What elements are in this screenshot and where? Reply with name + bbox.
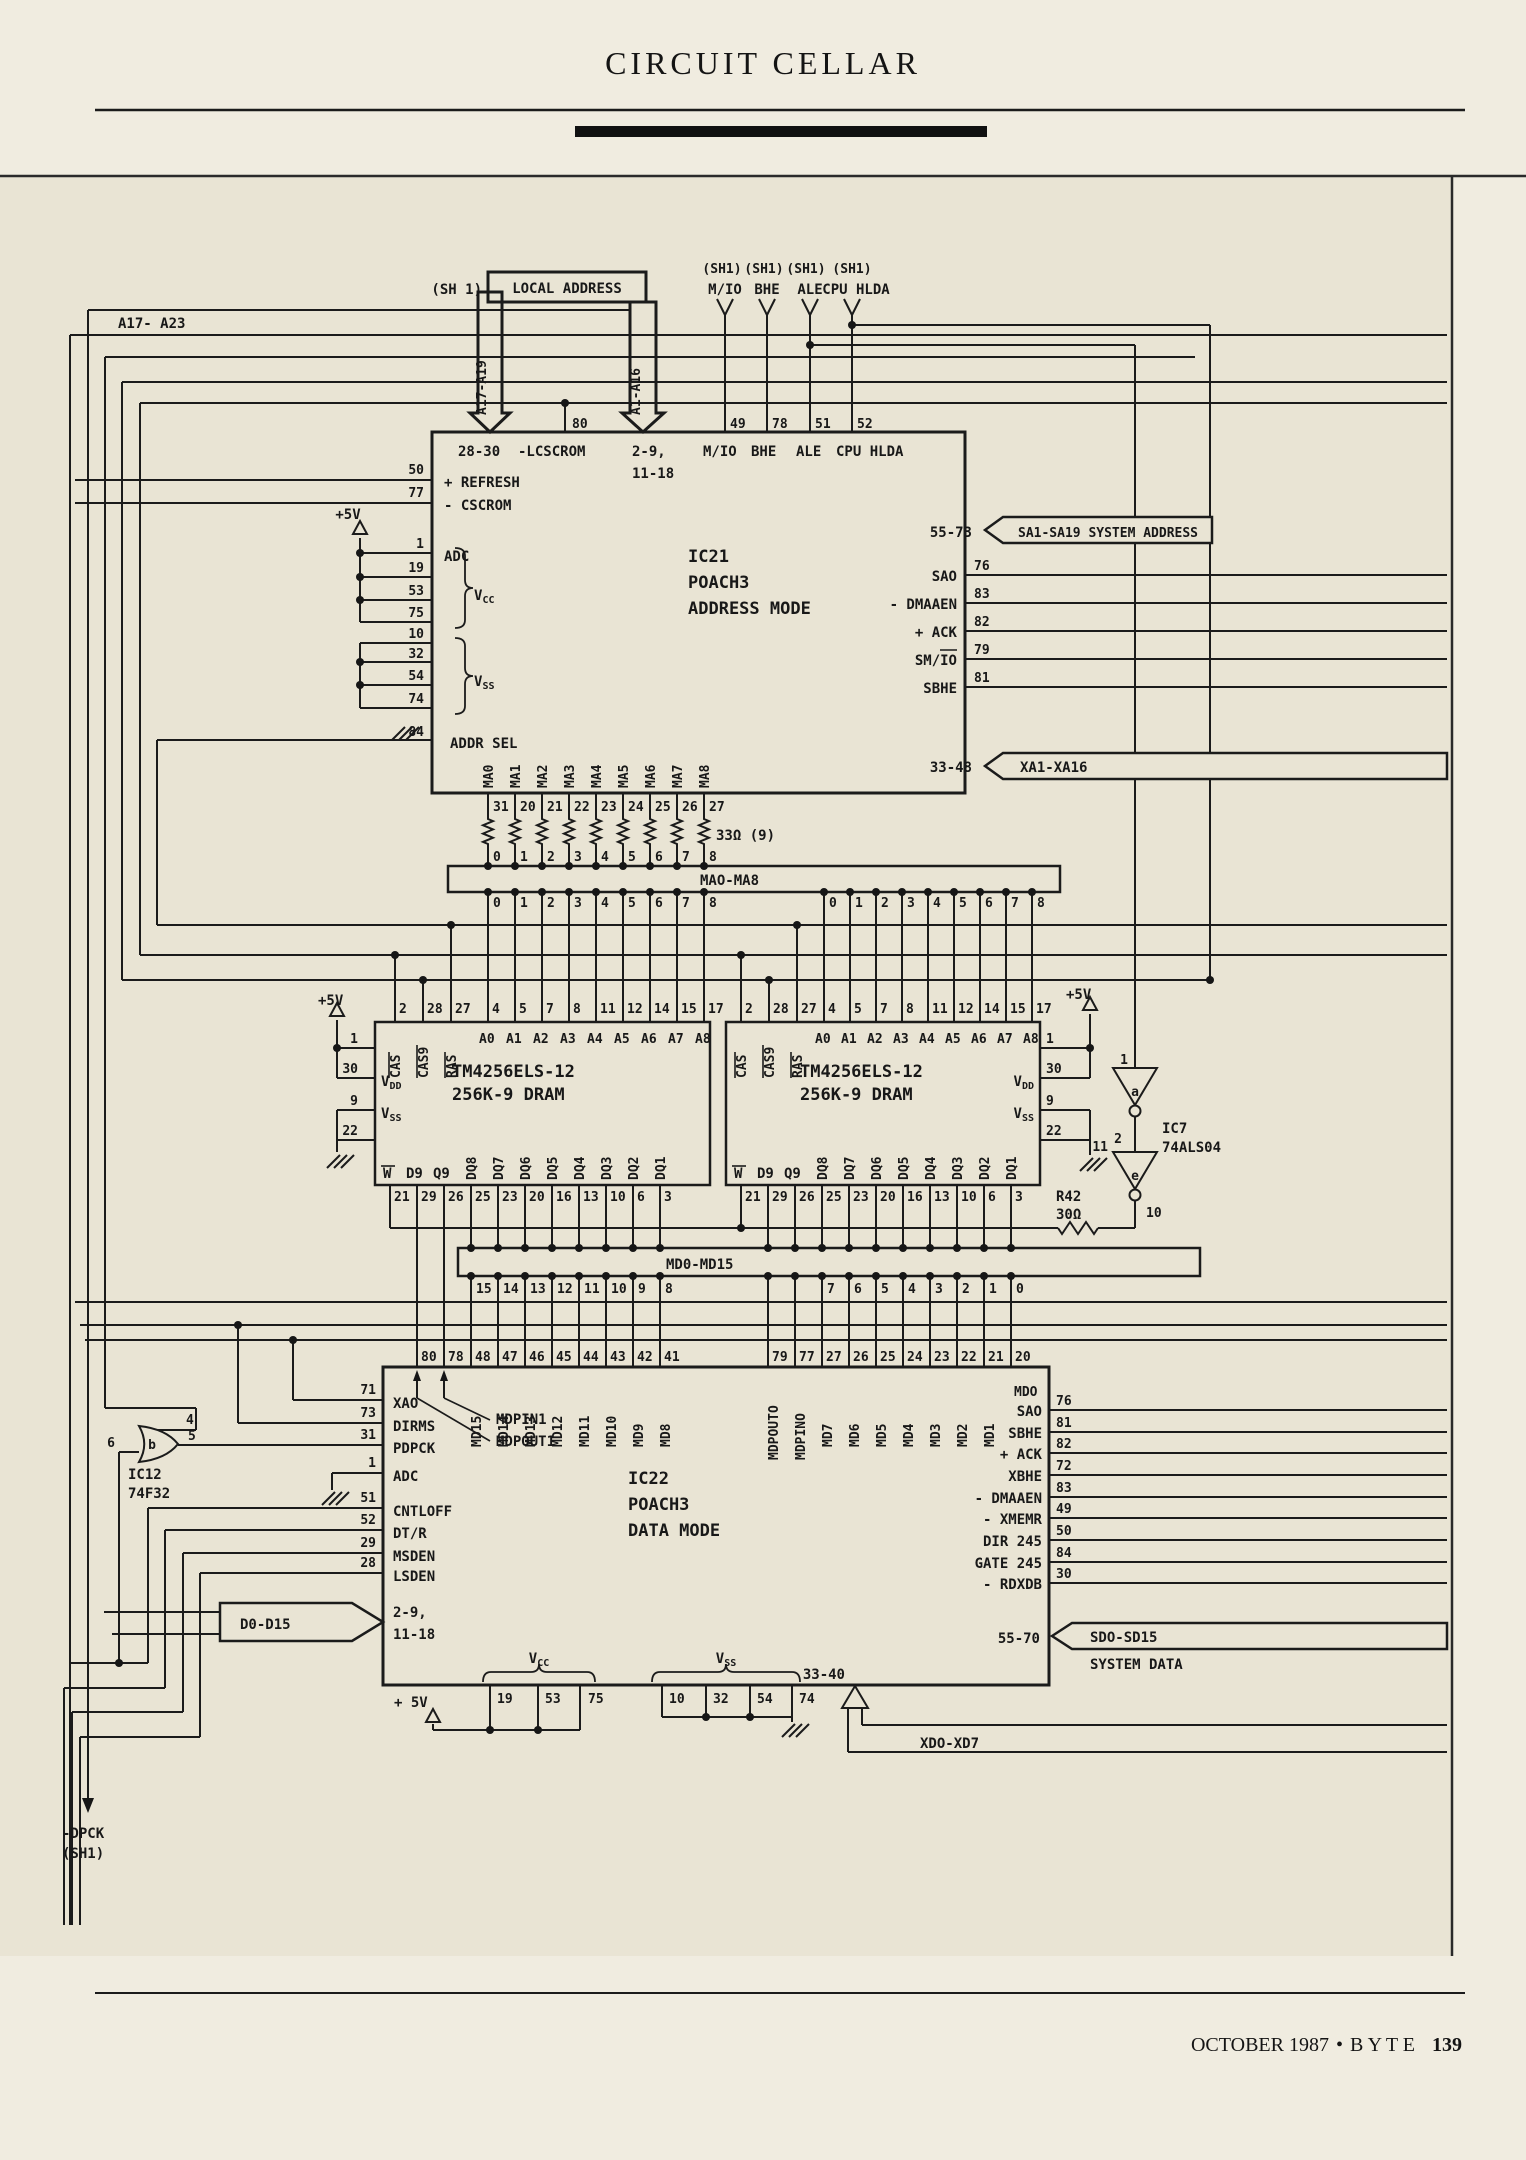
junction-dot	[521, 1272, 529, 1280]
label-ic21-top_labels-2: ALE	[796, 444, 821, 460]
label-md_bus-right_bits-7: 0	[1016, 1282, 1024, 1297]
label-ic22-top_pin_nums-5: 45	[556, 1350, 572, 1365]
junction-dot	[764, 1272, 772, 1280]
junction-dot	[980, 1244, 988, 1252]
label-ic12-part: 74F32	[128, 1486, 170, 1502]
label-ic22-xd_range: 33-40	[803, 1667, 845, 1683]
label-ic21-bottom-pin_nums-6: 25	[655, 800, 671, 815]
label-md_bus-right_bits-6: 1	[989, 1282, 997, 1297]
junction-dot	[511, 888, 519, 896]
label-ic21-top_pin_nums-4: 52	[857, 417, 873, 432]
label-ic22-md_high-4: MD11	[578, 1416, 593, 1447]
label-dram-top_pin_nums-0: 2	[745, 1002, 753, 1017]
label-md_bus-left_bits-1: 14	[503, 1282, 519, 1297]
label-ic21-bottom-bit_nums-0: 0	[493, 896, 501, 911]
label-ic21-bottom-bit_nums-8: 8	[709, 896, 717, 911]
label-dram-bottom_labels-6: DQ5	[897, 1157, 912, 1180]
junction-dot	[619, 888, 627, 896]
label-ic22-top_pin_nums-15: 24	[907, 1350, 923, 1365]
label-dram-top_labels-7: A4	[587, 1032, 603, 1047]
label-dram-top_labels-1: CAS9	[417, 1047, 432, 1078]
label-ic21-left_pins-2-label: ADC	[444, 549, 469, 565]
label-ic22-left_pins-0-label: XAO	[393, 1396, 418, 1412]
junction-dot	[656, 1244, 664, 1252]
label-md_bus-left_bits-6: 9	[638, 1282, 646, 1297]
label-dram-top_pin_nums-7: 11	[932, 1002, 948, 1017]
junction-dot	[575, 1272, 583, 1280]
label-dram-bottom_labels-5: DQ6	[870, 1156, 885, 1180]
label-top-cpu_signals-0: M/IO	[708, 282, 742, 298]
label-ic21-bottom-bit_nums-6: 6	[655, 896, 663, 911]
label-dram-top_pin_nums-7: 11	[600, 1002, 616, 1017]
label-dram-bottom_labels-4: DQ7	[843, 1157, 858, 1180]
junction-dot	[467, 1244, 475, 1252]
label-top-cpu_signals-1: BHE	[754, 282, 779, 298]
label-ic7-gate_e: e	[1131, 1169, 1139, 1184]
label-dram-bottom_pin_nums-4: 23	[502, 1190, 518, 1205]
label-dram-top_labels-8: A5	[945, 1032, 961, 1047]
junction-dot	[1086, 1044, 1094, 1052]
label-ic21-bottom-bit_nums-3: 3	[907, 896, 915, 911]
label-ic21-bottom-ma_labels-3: MA3	[563, 765, 578, 788]
label-dram-top_labels-0: CAS	[735, 1054, 750, 1078]
label-ic22-top_pin_nums-9: 41	[664, 1350, 680, 1365]
label-md_bus-right_bits-4: 3	[935, 1282, 943, 1297]
label-ic7-pin_out_e: 10	[1146, 1206, 1162, 1221]
label-ic21-bottom-bit_nums-1: 1	[520, 896, 528, 911]
label-ic21-bottom-bit_nums-4: 4	[601, 896, 609, 911]
junction-dot	[602, 1272, 610, 1280]
label-ic22-xd_bus: XDO-XD7	[920, 1736, 979, 1752]
label-dram-part1: TM4256ELS-12	[800, 1062, 923, 1082]
label-ic22-right_pins-1-num: 81	[1056, 1416, 1072, 1431]
label-dram-top_labels-5: A2	[533, 1032, 549, 1047]
label-dram-left_pin_nums-2: 9	[350, 1094, 358, 1109]
label-r42-ref: R42	[1056, 1189, 1081, 1205]
junction-dot	[646, 862, 654, 870]
junction-dot	[484, 888, 492, 896]
label-ic22-plus5v: + 5V	[394, 1695, 428, 1711]
label-dram-bottom_pin_nums-6: 16	[907, 1190, 923, 1205]
label-dram-bottom_labels-6: DQ5	[546, 1157, 561, 1180]
junction-dot	[673, 888, 681, 896]
label-ic7-pin_in_a: 1	[1120, 1053, 1128, 1068]
junction-dot	[561, 399, 569, 407]
label-md_bus-left_bits-7: 8	[665, 1282, 673, 1297]
label-dram-top_labels-9: A6	[971, 1032, 987, 1047]
label-dram-bottom_labels-7: DQ4	[924, 1156, 939, 1180]
label-dram-top_pin_nums-9: 14	[654, 1002, 670, 1017]
junction-dot	[1206, 976, 1214, 984]
label-dram-bottom_pin_nums-0: 21	[394, 1190, 410, 1205]
label-ic21-bottom-bit_nums-7: 7	[682, 896, 690, 911]
label-ic22-sd_range: 55-70	[998, 1631, 1040, 1647]
junction-dot	[926, 1244, 934, 1252]
label-dram-top_pin_nums-8: 12	[627, 1002, 643, 1017]
label-dram-bottom_pin_nums-1: 29	[772, 1190, 788, 1205]
label-ic21-right-sys_addr_range: 55-73	[930, 525, 972, 541]
label-ic21-right-pins-1-label: - DMAAEN	[890, 597, 957, 613]
label-dram-top_pin_nums-6: 8	[906, 1002, 914, 1017]
junction-dot	[953, 1244, 961, 1252]
label-md_bus-left_bits-3: 12	[557, 1282, 573, 1297]
junction-dot	[484, 862, 492, 870]
label-ic21-bottom-bit_nums-8: 8	[709, 850, 717, 865]
label-dram-left_pin_nums-0: 1	[1046, 1032, 1054, 1047]
junction-dot	[806, 341, 814, 349]
label-ic12-pins-in2: 4	[186, 1413, 194, 1428]
label-ic22-d_bus: D0-D15	[240, 1617, 291, 1633]
label-ic21-bottom-bit_nums-3: 3	[574, 896, 582, 911]
label-dram-top_pin_nums-3: 4	[492, 1002, 500, 1017]
label-top-sh1_left: (SH 1)	[431, 282, 482, 298]
label-ic21-bottom-bit_nums-2: 2	[547, 850, 555, 865]
label-dram-top_pin_nums-3: 4	[828, 1002, 836, 1017]
label-dram-plus5v: +5V	[318, 993, 344, 1009]
junction-dot	[538, 888, 546, 896]
label-ic21-bottom-bit_nums-6: 6	[985, 896, 993, 911]
label-ic21-vcc_pins-0: 19	[408, 561, 424, 576]
label-ic21-bottom-pin_nums-8: 27	[709, 800, 725, 815]
label-ic22-vcc_pins-1: 53	[545, 1692, 561, 1707]
label-dram-bottom_pin_nums-8: 10	[961, 1190, 977, 1205]
label-dram-bottom_pin_nums-9: 6	[988, 1190, 996, 1205]
label-top-sh1_tags-2: (SH1)	[786, 262, 825, 277]
label-md_bus-right_bits-1: 6	[854, 1282, 862, 1297]
label-dram-bottom_labels-2: Q9	[784, 1166, 801, 1182]
label-dram-top_labels-10: A7	[997, 1032, 1013, 1047]
label-ic21-vss_pins-2: 54	[408, 669, 424, 684]
label-dram-bottom_pin_nums-3: 25	[826, 1190, 842, 1205]
label-ic21-bottom-bit_nums-1: 1	[855, 896, 863, 911]
label-ic21-bottom-ma_labels-6: MA6	[644, 764, 659, 788]
junction-dot	[565, 888, 573, 896]
label-ic22-top_pin_nums-4: 46	[529, 1350, 545, 1365]
label-dram-bottom_pin_nums-10: 3	[1015, 1190, 1023, 1205]
junction-dot	[793, 921, 801, 929]
magazine-page: CIRCUIT CELLAR OCTOBER 1987•B Y T E 139 …	[0, 0, 1526, 2160]
label-ic21-right-pins-3-label: SM/IO	[915, 653, 957, 669]
label-ic22-md_low-2: MD5	[875, 1424, 890, 1447]
label-ic21-bottom-bit_nums-2: 2	[881, 896, 889, 911]
label-ic22-right_pins-3-num: 72	[1056, 1459, 1072, 1474]
label-ic22-left_pins-3-num: 1	[368, 1456, 376, 1471]
label-ic21-bottom-bit_nums-5: 5	[959, 896, 967, 911]
label-ic22-sd_bus: SDO-SD15	[1090, 1630, 1157, 1646]
label-md_bus-left_bits-5: 10	[611, 1282, 627, 1297]
junction-dot	[629, 1272, 637, 1280]
label-dram-top_labels-1: CAS9	[763, 1047, 778, 1078]
junction-dot	[700, 888, 708, 896]
junction-dot	[926, 1272, 934, 1280]
label-dram-top_labels-10: A7	[668, 1032, 684, 1047]
junction-dot	[548, 1244, 556, 1252]
footer-page-number: 139	[1432, 2034, 1462, 2056]
label-dram-bottom_pin_nums-8: 10	[610, 1190, 626, 1205]
label-ic21-bottom-bus_label: MAO-MA8	[700, 873, 759, 889]
junction-dot	[575, 1244, 583, 1252]
junction-dot	[629, 1244, 637, 1252]
label-ic22-top_pin_nums-10: 79	[772, 1350, 788, 1365]
junction-dot	[494, 1244, 502, 1252]
label-dram-bottom_labels-3: DQ8	[465, 1156, 480, 1180]
label-ic21-left_pins-1-num: 77	[408, 486, 424, 501]
label-ic21-bottom-pin_nums-3: 22	[574, 800, 590, 815]
label-ic21-top_labels-1: BHE	[751, 444, 776, 460]
junction-dot	[818, 1272, 826, 1280]
label-ic21-bottom-pin_nums-0: 31	[493, 800, 509, 815]
label-ic22-mdpout1: MDPOUT1	[496, 1434, 555, 1450]
label-md_bus-right_bits-3: 4	[908, 1282, 916, 1297]
junction-dot	[1007, 1244, 1015, 1252]
label-ic21-right-pins-4-num: 81	[974, 671, 990, 686]
junction-dot	[592, 888, 600, 896]
label-ic22-d_range2: 11-18	[393, 1627, 435, 1643]
junction-dot	[899, 1244, 907, 1252]
label-ic21-addr_sel_num: 84	[408, 725, 424, 740]
label-ic22-md_low-5: MD2	[956, 1424, 971, 1447]
label-ic22-md_low-3: MD4	[902, 1423, 917, 1447]
label-dram-top_pin_nums-9: 14	[984, 1002, 1000, 1017]
junction-dot	[289, 1336, 297, 1344]
label-ic22-right_pins-7-label: GATE 245	[975, 1556, 1042, 1572]
label-ic22-left_pins-5-num: 52	[360, 1513, 376, 1528]
label-dram-bottom_labels-1: D9	[406, 1166, 423, 1182]
junction-dot	[765, 976, 773, 984]
label-dram-top_pin_nums-1: 28	[427, 1002, 443, 1017]
circuit-schematic: CIRCUIT CELLAR OCTOBER 1987•B Y T E 139 …	[0, 0, 1526, 2160]
junction-dot	[115, 1659, 123, 1667]
label-ic21-bottom-ma_labels-4: MA4	[590, 764, 605, 788]
label-ic21-bottom-ma_labels-2: MA2	[536, 765, 551, 788]
junction-dot	[899, 1272, 907, 1280]
label-bottom_left-dpck: -DPCK	[62, 1826, 105, 1842]
label-dram-plus5v: +5V	[1066, 987, 1092, 1003]
label-dram-bottom_labels-7: DQ4	[573, 1156, 588, 1180]
label-ic21-vcc_pins-2: 75	[408, 606, 424, 621]
label-ic22-top_pin_nums-6: 44	[583, 1350, 599, 1365]
junction-dot	[848, 321, 856, 329]
label-ic21-bottom-pin_nums-5: 24	[628, 800, 644, 815]
label-ic21-left_pins-0-num: 50	[408, 463, 424, 478]
label-ic21-top_pin_nums-3: 51	[815, 417, 831, 432]
label-dram-bottom_labels-9: DQ2	[627, 1157, 642, 1180]
label-dram-top_labels-5: A2	[867, 1032, 883, 1047]
label-ic21-top_pin_nums-2: 78	[772, 417, 788, 432]
label-ic21-ref: IC21	[688, 547, 729, 567]
junction-dot	[673, 862, 681, 870]
label-ic22-top_pin_nums-14: 25	[880, 1350, 896, 1365]
label-ic22-mdpin0: MDPINO	[794, 1413, 809, 1460]
md-bus	[458, 1248, 1200, 1276]
label-ic21-left_pins-2-num: 1	[416, 537, 424, 552]
label-ic21-vss_pins-0: 10	[408, 627, 424, 642]
junction-dot	[872, 1272, 880, 1280]
label-md_bus-label: MD0-MD15	[666, 1257, 733, 1273]
label-ic22-md_low-0: MD7	[821, 1424, 836, 1447]
label-dram-bottom_labels-8: DQ3	[600, 1157, 615, 1180]
label-dram-top_pin_nums-2: 27	[455, 1002, 471, 1017]
label-top-bus_a17_a23: A17- A23	[118, 316, 185, 332]
label-dram-bottom_pin_nums-2: 26	[799, 1190, 815, 1205]
label-dram-top_labels-3: A0	[815, 1032, 831, 1047]
label-ic21-bottom-bit_nums-0: 0	[493, 850, 501, 865]
label-dram-bottom_labels-10: DQ1	[654, 1156, 669, 1180]
junction-dot	[737, 1224, 745, 1232]
junction-dot	[898, 888, 906, 896]
junction-dot	[511, 862, 519, 870]
label-dram-top_pin_nums-5: 7	[546, 1002, 554, 1017]
label-ic21-top_pin_range_left: 28-30	[458, 444, 500, 460]
label-dram-left_pin_nums-2: 9	[1046, 1094, 1054, 1109]
label-ic21-bottom-pin_nums-2: 21	[547, 800, 563, 815]
label-ic21-bottom-ma_labels-7: MA7	[671, 765, 686, 788]
label-dram-top_pin_nums-4: 5	[854, 1002, 862, 1017]
label-ic12-pins-out: 5	[188, 1429, 196, 1444]
page-title: CIRCUIT CELLAR	[605, 45, 921, 81]
label-dram-top_pin_nums-5: 7	[880, 1002, 888, 1017]
label-ic21-bottom-ma_labels-5: MA5	[617, 765, 632, 788]
label-r42-value: 30Ω	[1056, 1207, 1081, 1223]
label-top-local_address: LOCAL ADDRESS	[512, 281, 622, 297]
junction-dot	[1028, 888, 1036, 896]
label-ic21-bottom-bit_nums-7: 7	[682, 850, 690, 865]
junction-dot	[950, 888, 958, 896]
label-ic22-top_pin_nums-19: 20	[1015, 1350, 1031, 1365]
label-ic21-right-pins-1-num: 83	[974, 587, 990, 602]
label-dram-bottom_labels-5: DQ6	[519, 1156, 534, 1180]
label-ic21-right-pins-0-label: SAO	[932, 569, 957, 585]
label-top-arrow_a17_a19: A17-A19	[475, 360, 490, 415]
junction-dot	[791, 1244, 799, 1252]
label-ic21-bottom-bit_nums-4: 4	[601, 850, 609, 865]
label-ic21-bottom-bit_nums-0: 0	[829, 896, 837, 911]
junction-dot	[538, 862, 546, 870]
label-ic22-left_pins-7-label: LSDEN	[393, 1569, 435, 1585]
label-dram-top_labels-8: A5	[614, 1032, 630, 1047]
label-dram-top_pin_nums-0: 2	[399, 1002, 407, 1017]
junction-dot	[333, 1044, 341, 1052]
label-dram-bottom_labels-1: D9	[757, 1166, 774, 1182]
label-ic21-right-pins-0-num: 76	[974, 559, 990, 574]
junction-dot	[619, 862, 627, 870]
label-dram-top_pin_nums-10: 15	[1010, 1002, 1026, 1017]
label-ic22-top_pin_nums-11: 77	[799, 1350, 815, 1365]
label-ic21-top_labels-0: M/IO	[703, 444, 737, 460]
label-ic22-right_pins-8-label: - RDXDB	[983, 1577, 1042, 1593]
label-dram-bottom_labels-3: DQ8	[816, 1156, 831, 1180]
label-ic21-right-sys_addr: SA1-SA19 SYSTEM ADDRESS	[1018, 526, 1198, 541]
junction-dot	[791, 1272, 799, 1280]
label-ic22-left_pins-0-num: 71	[360, 1383, 376, 1398]
junction-dot	[846, 888, 854, 896]
label-dram-top_labels-9: A6	[641, 1032, 657, 1047]
label-ic21-bottom-pin_nums-7: 26	[682, 800, 698, 815]
junction-dot	[534, 1726, 542, 1734]
label-dram-left_pin_nums-1: 30	[1046, 1062, 1062, 1077]
junction-dot	[467, 1272, 475, 1280]
junction-dot	[447, 921, 455, 929]
label-ic21-mode: ADDRESS MODE	[688, 599, 811, 619]
label-ic21-bottom-pin_nums-1: 20	[520, 800, 536, 815]
label-dram-top_labels-11: A8	[1023, 1032, 1039, 1047]
label-ic22-right_pins-8-num: 30	[1056, 1567, 1072, 1582]
junction-dot	[592, 862, 600, 870]
label-ic21-bottom-bit_nums-3: 3	[574, 850, 582, 865]
label-dram-bottom_pin_nums-6: 16	[556, 1190, 572, 1205]
label-ic22-md_low-6: MD1	[983, 1423, 998, 1447]
label-ic21-left_pins-0-label: + REFRESH	[444, 475, 520, 491]
label-dram-part1: TM4256ELS-12	[452, 1062, 575, 1082]
label-ic22-md_low-1: MD6	[848, 1423, 863, 1447]
junction-dot	[565, 862, 573, 870]
label-ic22-mdpout0: MDPOUTO	[767, 1405, 782, 1460]
label-dram-top_labels-4: A1	[506, 1032, 522, 1047]
label-ic7-ref: IC7	[1162, 1121, 1187, 1137]
label-ic21-bottom-bit_nums-5: 5	[628, 850, 636, 865]
label-ic22-top_pin_nums-1: 78	[448, 1350, 464, 1365]
label-dram-bottom_labels-2: Q9	[433, 1166, 450, 1182]
label-ic12-ref: IC12	[128, 1467, 162, 1483]
header-bar	[575, 126, 987, 137]
label-ic21-top_range_mid: 2-9,	[632, 444, 666, 460]
label-dram-top_pin_nums-11: 17	[1036, 1002, 1052, 1017]
label-ic22-left_pins-2-label: PDPCK	[393, 1441, 436, 1457]
label-ic21-bottom-bit_nums-1: 1	[520, 850, 528, 865]
label-dram-bottom_labels-0: W	[734, 1166, 743, 1182]
label-dram-top_pin_nums-10: 15	[681, 1002, 697, 1017]
label-ic21-left_pins-1-label: - CSCROM	[444, 498, 511, 514]
label-ic22-ref: IC22	[628, 1469, 669, 1489]
label-ic22-top_pin_nums-3: 47	[502, 1350, 518, 1365]
label-ic21-bottom-bit_nums-2: 2	[547, 896, 555, 911]
label-ic21-right-xa: XA1-XA16	[1020, 760, 1087, 776]
label-ic21-top_lcscrom: -LCSCROM	[518, 444, 585, 460]
label-ic21-right-pins-4-label: SBHE	[923, 681, 957, 697]
label-ic22-left_pins-1-num: 73	[360, 1406, 376, 1421]
label-ic7-pin_in_e: 11	[1092, 1140, 1108, 1155]
junction-dot	[702, 1713, 710, 1721]
label-dram-top_pin_nums-6: 8	[573, 1002, 581, 1017]
label-dram-part2: 256K-9 DRAM	[452, 1085, 565, 1105]
label-dram-bottom_pin_nums-5: 20	[880, 1190, 896, 1205]
label-ic22-mdpin1: MDPIN1	[496, 1412, 547, 1428]
label-dram-top_pin_nums-2: 27	[801, 1002, 817, 1017]
label-ic7-part: 74ALS04	[1162, 1140, 1221, 1156]
label-ic22-right_pins-6-label: DIR 245	[983, 1534, 1042, 1550]
label-ic22-top_pin_nums-7: 43	[610, 1350, 626, 1365]
label-ic21-right-pins-2-label: + ACK	[915, 625, 958, 641]
label-dram-top_labels-6: A3	[560, 1032, 576, 1047]
junction-dot	[764, 1244, 772, 1252]
label-ic22-right_pins-5-num: 49	[1056, 1502, 1072, 1517]
label-ic21-top_range_mid2: 11-18	[632, 466, 674, 482]
label-dram-bottom_labels-9: DQ2	[978, 1157, 993, 1180]
label-ic21-vss_pins-3: 74	[408, 692, 424, 707]
label-ic21-bottom-bit_nums-8: 8	[1037, 896, 1045, 911]
label-md_bus-left_bits-2: 13	[530, 1282, 546, 1297]
label-ic22-left_pins-1-label: DIRMS	[393, 1419, 435, 1435]
label-ic22-right_pins-7-num: 84	[1056, 1546, 1072, 1561]
label-ic22-left_pins-6-label: MSDEN	[393, 1549, 435, 1565]
junction-dot	[924, 888, 932, 896]
junction-dot	[391, 951, 399, 959]
label-ic22-top_pin_nums-16: 23	[934, 1350, 950, 1365]
label-ic22-top_pin_nums-2: 48	[475, 1350, 491, 1365]
junction-dot	[980, 1272, 988, 1280]
junction-dot	[872, 888, 880, 896]
label-ic22-left_pins-3-label: ADC	[393, 1469, 418, 1485]
